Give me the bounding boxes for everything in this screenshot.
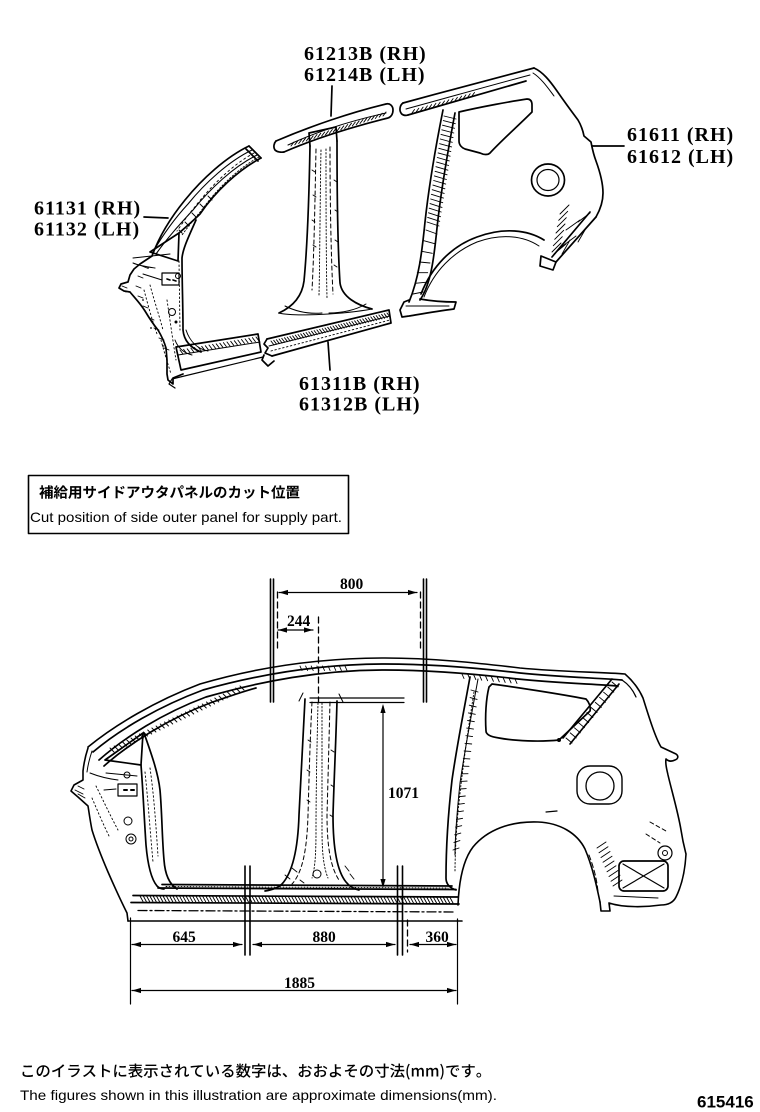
svg-text:61131 (RH): 61131 (RH) <box>34 198 141 220</box>
svg-text:61312B (LH): 61312B (LH) <box>299 394 421 416</box>
svg-text:880: 880 <box>313 929 337 946</box>
svg-text:Cut position of side outer pan: Cut position of side outer panel for sup… <box>30 509 342 525</box>
svg-text:1071: 1071 <box>388 785 419 802</box>
svg-text:61213B (RH): 61213B (RH) <box>304 43 427 65</box>
svg-text:61132 (LH): 61132 (LH) <box>34 219 140 241</box>
svg-text:800: 800 <box>340 576 364 593</box>
svg-text:645: 645 <box>173 929 197 946</box>
svg-text:61611 (RH): 61611 (RH) <box>627 124 734 146</box>
svg-text:61612 (LH): 61612 (LH) <box>627 146 734 168</box>
svg-text:The figures shown in this illu: The figures shown in this illustration a… <box>20 1087 497 1103</box>
svg-text:244: 244 <box>287 613 311 630</box>
svg-text:61214B (LH): 61214B (LH) <box>304 64 426 86</box>
svg-text:61311B (RH): 61311B (RH) <box>299 373 421 395</box>
svg-text:615416: 615416 <box>697 1093 754 1112</box>
svg-text:1885: 1885 <box>284 975 315 992</box>
svg-text:360: 360 <box>426 929 450 946</box>
